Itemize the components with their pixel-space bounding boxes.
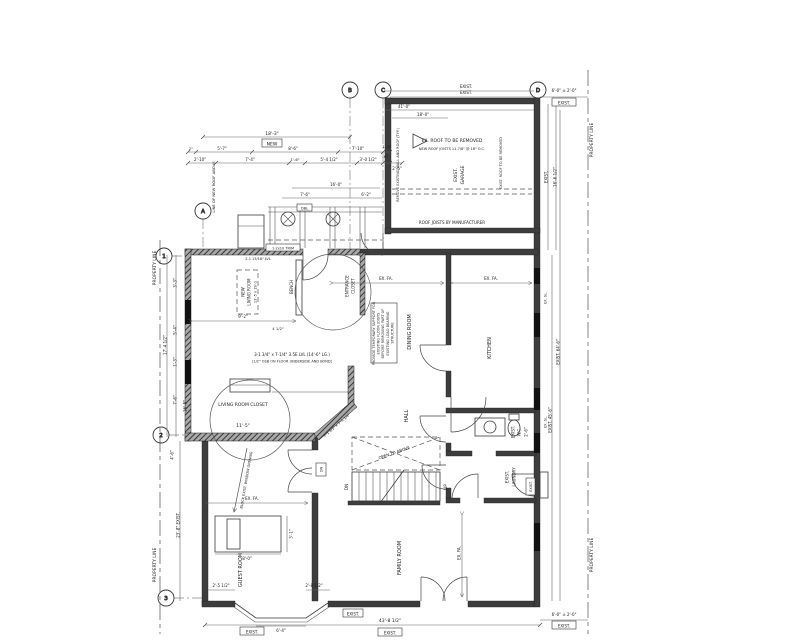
ex-fa-dining: EX. FA.: [379, 276, 393, 281]
wc-label-2: W.C.: [517, 428, 522, 437]
living-room-tag-new: NEW: [241, 287, 246, 297]
laundry-label-1: EXIST.: [505, 471, 510, 483]
dim-18-3: 18'-3": [265, 131, 279, 137]
roof-joists-mfr-note: ROOF JOISTS BY MANUFACTURER: [419, 220, 485, 225]
dim-17-4h: 17'-4 1/2": [163, 335, 168, 355]
wc-label-1: EXIST.: [511, 426, 516, 438]
dim-3-1: 3'-1": [289, 529, 294, 539]
dim-2-5h: 2'-5 1/2": [212, 583, 229, 588]
wc-dim: 2'-6": [524, 427, 529, 437]
dim-16-6h: 16'-6 1/2": [553, 167, 558, 187]
new-tag: NEW: [267, 142, 278, 148]
dim-4-6: 4'-6": [170, 450, 175, 460]
exist-bottom-right: EXIST.: [558, 624, 570, 629]
exist-door-tag: EXIST.: [529, 481, 533, 492]
laundry-label-2: LAUNDRY: [512, 467, 517, 487]
exist-garage-top: EXIST.: [460, 84, 472, 89]
dbl-tag: DBL: [301, 206, 308, 210]
property-line-label: PROPERTY LINE: [589, 537, 595, 572]
exist-top-right: EXIST.: [558, 101, 570, 106]
dim-6-0-top: 6'-0" ± 2'-0": [552, 88, 577, 93]
stairs-dn-label: DN: [344, 484, 350, 491]
ex-fa-family: EX. FA.: [457, 546, 462, 560]
grid-bubble-3: 3: [164, 596, 168, 602]
exist-bay: EXIST.: [246, 630, 258, 635]
dim-6-2: 6'-2": [361, 192, 371, 197]
living-room-tag-size: 13'-5 x 19'-1: [254, 281, 258, 303]
dim-5-4: 5'-4": [173, 325, 178, 335]
dim-6-0-bottom: 6'-0" ± 2'-0": [552, 612, 577, 617]
dim-64-6: EXIST. 64'-6": [556, 339, 561, 365]
ex-fa-guest: EX. FA.: [245, 496, 259, 501]
roof-removed-note: EX. ROOF TO BE REMOVED: [422, 138, 483, 144]
floor-plan-drawing: PROPERTY LINE PROPERTY LINE PROPERTY LIN…: [0, 0, 800, 640]
hall-label: HALL: [404, 409, 410, 422]
dim-41-0: 41'-0": [398, 104, 410, 109]
family-room-label: FAMILY ROOM: [397, 541, 403, 575]
dim-2-8h: 2'-8 1/2": [305, 583, 322, 588]
ex-sl-tag: EX. SL.: [544, 292, 548, 304]
dim-m6: -6": [382, 155, 387, 159]
dim-8-0: 8'-0": [242, 556, 252, 561]
grid-bubble-a: A: [201, 209, 205, 215]
grid-lines: [169, 98, 538, 598]
walls-new-hatched: [185, 249, 365, 441]
entrance-closet-label-2: CLOSET: [351, 278, 356, 294]
ex-fa-kitchen: EX. FA.: [484, 276, 498, 281]
garage-label-exist: EXIST.: [453, 168, 459, 182]
dim-5-7: 5'-7": [217, 146, 227, 151]
dim-4h: 4 1/2": [272, 326, 284, 331]
dim-7-10: 7'-10": [352, 146, 364, 151]
garage-area: EX. ROOF TO BE REMOVED NEW ROOF JOISTS 1…: [211, 127, 532, 225]
property-line-label: PROPERTY LINE: [152, 250, 158, 285]
property-line-label: PROPERTY LINE: [152, 547, 158, 582]
callouts: BLOCK EXIST. WINDOW OPENING 3'-1 1/2" x …: [210, 254, 548, 512]
lvl-note-2: (1/2" OSB ON FLOOR UNDERSIDE AND BOND): [252, 360, 333, 364]
dim-23-8: 23'-8" EXIST.: [176, 512, 181, 538]
new-roof-joists-note: NEW ROOF JOISTS 11-7/8" @ 16" O.C.: [419, 147, 485, 151]
remove-wall-note: REMOVE EXISTING WALL AND ROOF (TYP.): [396, 127, 400, 201]
grid-bubble-1: 1: [162, 254, 166, 260]
dim-2-6: 2'-6": [392, 166, 402, 171]
grid-bubble-2: 2: [159, 433, 163, 439]
dim-5-4h: 5'-4 1/2": [320, 157, 337, 162]
dim-45-6: EXIST. 45'-6": [548, 407, 553, 433]
dim-1-3: 1'-3": [173, 357, 178, 367]
kitchen-label: KITCHEN: [487, 337, 493, 359]
dim-8-6: 8'-6": [288, 146, 298, 151]
exist-family-door: EXIST.: [347, 612, 359, 617]
dim-7-6-left: 7'-6": [173, 395, 178, 405]
dim-11-5: 11'-5": [236, 423, 250, 429]
grid-bubble-c: C: [381, 88, 385, 94]
dim-18-0: 18'-0": [417, 112, 429, 117]
dim-6-4-bay: 6'-4": [276, 628, 286, 633]
dim-7-6: 7'-6": [300, 192, 310, 197]
lvl-header-note: 2-1 13/16" LVL: [245, 257, 271, 261]
dim-43-8h: 43'-8 1/2": [379, 618, 401, 624]
dim-16-5: 16'-5": [183, 400, 188, 412]
exist-bottom: EXIST.: [384, 631, 396, 636]
dining-room-label: DINING ROOM: [407, 314, 413, 349]
living-room-closet-label: LIVING ROOM CLOSET: [218, 402, 268, 408]
dim-2-10: 2'-10": [194, 157, 206, 162]
lvl-note-1: 3-1 3/4" x 7-1/4" 3.5E LVL (14'-6" LG.): [254, 352, 330, 357]
stairs-up-label: UP: [443, 484, 449, 490]
grid-bubble-d: D: [536, 88, 540, 94]
living-room-tag-name: LIVING ROOM: [247, 278, 252, 306]
entrance-closet-label-1: ENTRANCE: [345, 275, 350, 297]
dim-1-6b: 1'-6": [291, 157, 300, 162]
dim-3-0h: 3'-0 1/2": [359, 157, 376, 162]
bay-window: [234, 603, 329, 622]
dim-9-2: 9'-2": [238, 314, 248, 319]
exist-roof-removed-note: EXIST. ROOF TO BE REMOVED: [499, 137, 503, 190]
exist-right-garage: EXIST.: [544, 171, 549, 183]
grid-bubble-b: B: [348, 88, 352, 94]
dim-3-3: 3'-3": [173, 278, 178, 288]
dim-16-0: 16'-0": [330, 182, 342, 187]
line-of-roof-note: LINE OF NEW ROOF ABOVE: [211, 161, 216, 213]
stairs: OPEN TO ABOVE DN UP: [344, 437, 449, 503]
garage-label-garage: GARAGE: [460, 165, 466, 184]
bench-label: BENCH: [289, 280, 294, 294]
trim-note: 1-2x10 TRIM: [272, 246, 294, 250]
dn-door-tag: DN: [320, 466, 324, 472]
dim-1-6: 1'-6": [383, 144, 392, 149]
floor-plan-sheet: PROPERTY LINE PROPERTY LINE PROPERTY LIN…: [0, 0, 800, 640]
dim-2in: 2": [189, 146, 193, 151]
support-note-box: PROVIDE TEMPORARY SUPPORT FOR EXISTING F…: [371, 301, 397, 366]
open-to-above-label: OPEN TO ABOVE: [378, 445, 411, 461]
property-line-label: PROPERTY LINE: [589, 122, 595, 157]
dim-7-4: 7'-4": [245, 157, 255, 162]
